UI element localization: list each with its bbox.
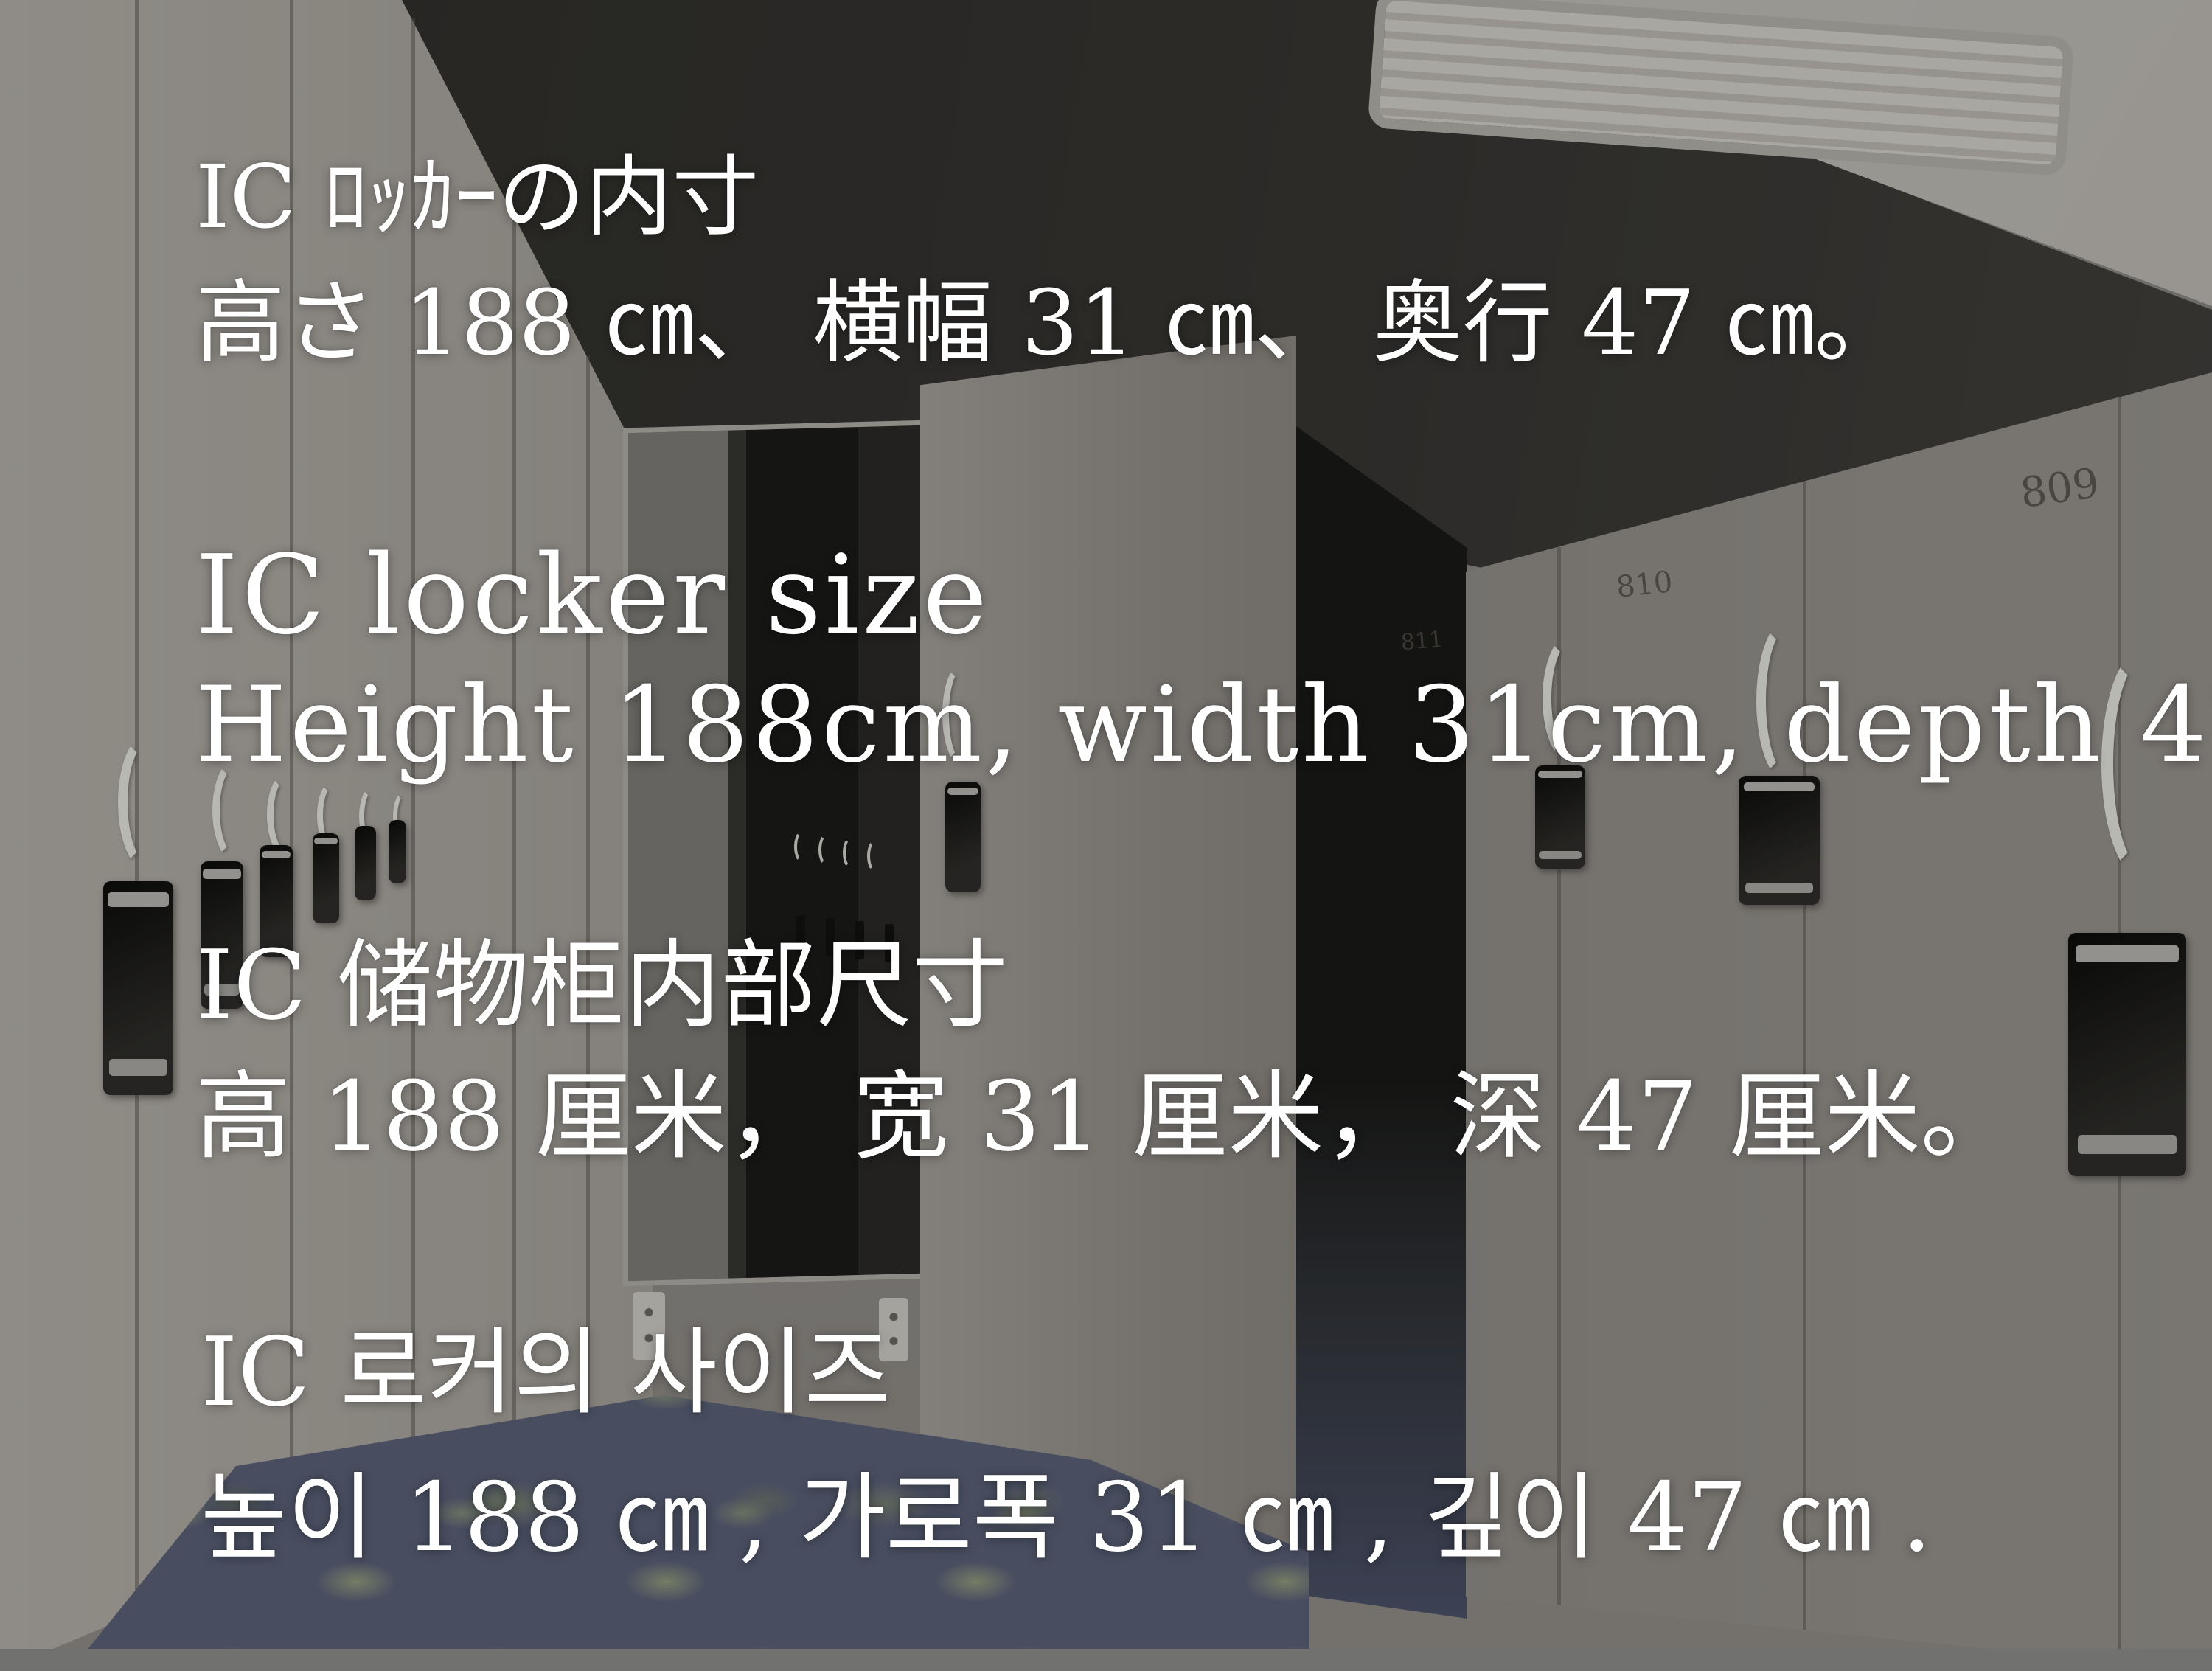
korean-dimensions-text: 높이 188 ㎝ , 가로폭 31 ㎝ , 깊이 47 ㎝ . <box>201 1464 1932 1572</box>
caption-chinese: IC 储物柜内部尺寸 高 188 厘米， 宽 31 厘米， 深 47 厘米。 <box>195 931 2017 1172</box>
caption-korean: IC 로커의 사이즈 높이 188 ㎝ , 가로폭 31 ㎝ , 깊이 47 ㎝… <box>201 1319 1932 1572</box>
english-dimensions-text: Height 188cm, width 31cm, depth 47cm. <box>195 665 2212 785</box>
locker-room-photo: 809 810 811 IC ﾛｯｶｰの内寸 高さ 188 ㎝、 横幅 31 ㎝… <box>0 0 2212 1671</box>
chinese-dimensions-text: 高 188 厘米， 宽 31 厘米， 深 47 厘米。 <box>195 1062 2017 1173</box>
japanese-title-text: IC ﾛｯｶｰの内寸 <box>195 147 1905 248</box>
chinese-title-text: IC 储物柜内部尺寸 <box>195 931 2017 1041</box>
caption-japanese: IC ﾛｯｶｰの内寸 高さ 188 ㎝、 横幅 31 ㎝、 奥行 47 ㎝。 <box>195 147 1905 375</box>
caption-english: IC locker size Height 188cm, width 31cm,… <box>195 532 2212 785</box>
japanese-dimensions-text: 高さ 188 ㎝、 横幅 31 ㎝、 奥行 47 ㎝。 <box>195 271 1905 375</box>
korean-title-text: IC 로커의 사이즈 <box>201 1319 1932 1427</box>
english-title-text: IC locker size <box>195 532 2212 658</box>
